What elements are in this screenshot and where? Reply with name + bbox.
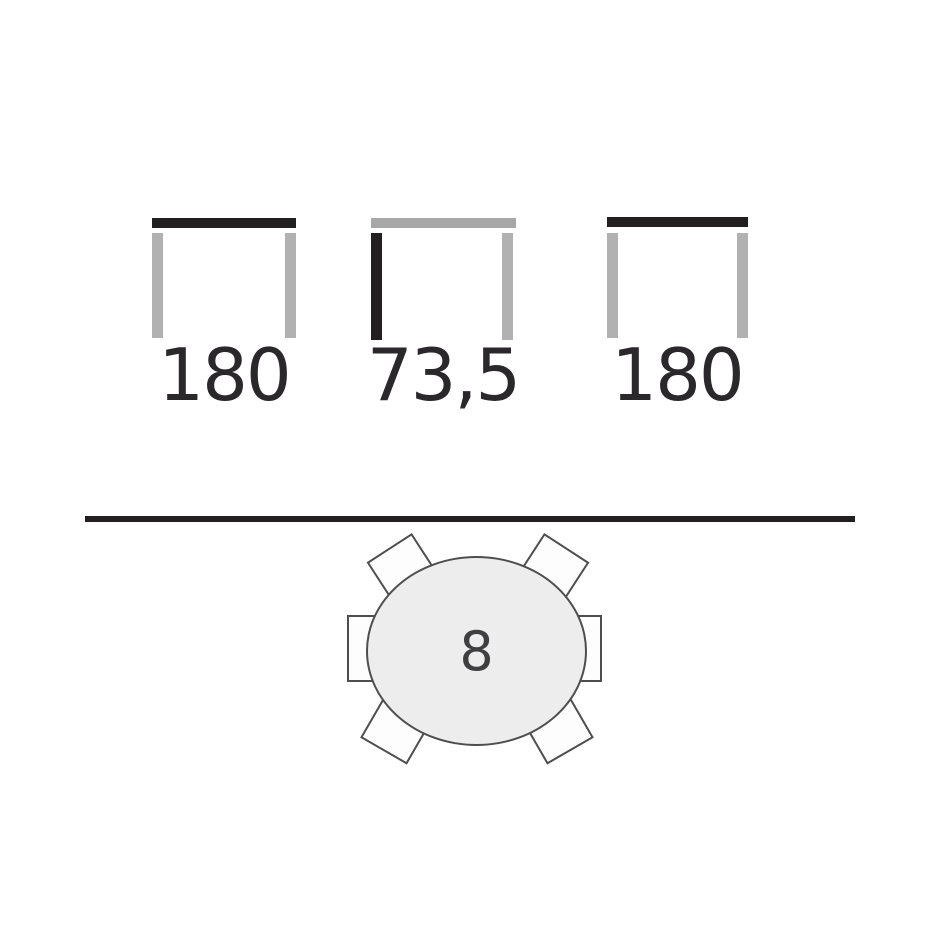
- divider-line: [85, 516, 855, 522]
- table-leg-left: [152, 233, 163, 338]
- tabletop-bar: [607, 217, 748, 227]
- table-leg-left: [607, 233, 618, 338]
- seat-count-label: 8: [366, 556, 587, 746]
- dimension-label-width-2: 180: [577, 339, 777, 411]
- table-leg-right: [285, 233, 296, 338]
- dimension-label-width-1: 180: [124, 339, 324, 411]
- dimension-diagram: 180 73,5 180 8: [0, 0, 950, 950]
- table-leg-right: [502, 233, 513, 340]
- table-leg-left: [371, 233, 382, 340]
- table-leg-right: [737, 233, 748, 338]
- dimension-label-height: 73,5: [343, 339, 543, 411]
- tabletop-bar: [371, 218, 516, 228]
- tabletop-bar: [152, 218, 296, 228]
